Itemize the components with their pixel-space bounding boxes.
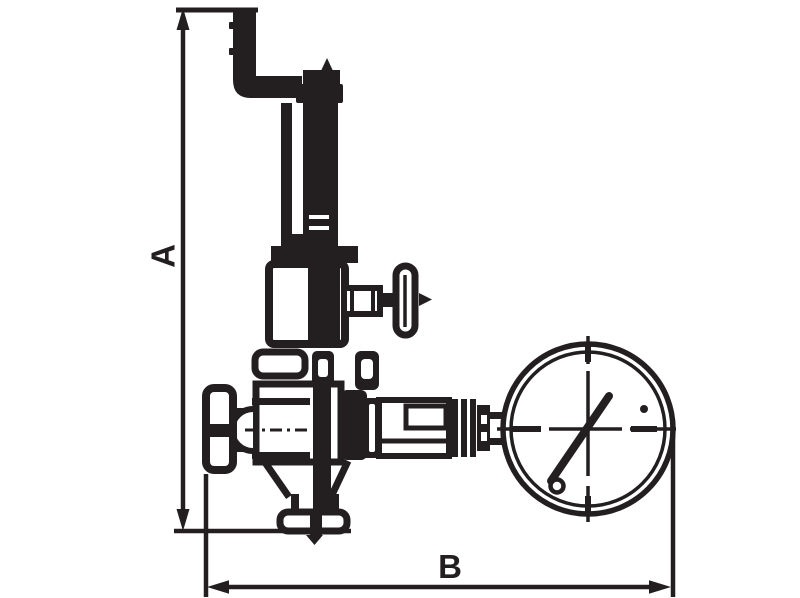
pressure-gauge: [497, 336, 676, 522]
funnel-left: [264, 461, 289, 497]
bonnet-cap-step: [282, 234, 306, 248]
gauge-connection: [341, 390, 505, 460]
rod-nub: [229, 22, 235, 29]
thread-notch: [309, 226, 329, 230]
outlet-tip: [306, 535, 323, 545]
knurl-ridge: [470, 399, 476, 457]
branch-cap-slot: [361, 359, 373, 379]
adjusting-screw-stem: [303, 100, 338, 246]
inlet-cap: [202, 388, 237, 470]
top-lever-rod: [229, 10, 302, 98]
bent-rod: [233, 10, 302, 98]
step-ring-slot: [481, 432, 487, 441]
dial-dot: [640, 405, 648, 413]
cap-step: [303, 70, 340, 86]
body-top-flange: [255, 352, 305, 376]
funnel-right: [331, 461, 348, 497]
dimension-a-arrow-down-icon: [177, 509, 190, 531]
dimension-b-arrow-left-icon: [207, 580, 229, 594]
branch-stem: [381, 293, 394, 307]
bonnet-spindle: [308, 264, 340, 344]
flange-ring-slot: [369, 404, 375, 452]
valve-body: [232, 384, 348, 545]
thread-notch: [309, 215, 329, 219]
step-ring-slot: [481, 415, 487, 424]
knurl-ridge: [461, 399, 467, 457]
stem-tip: [419, 293, 432, 306]
spring-housing-column: [281, 100, 338, 248]
inlet-handle-band: [202, 424, 237, 437]
port-bore-bottom: [252, 452, 310, 459]
body-right-boss: [341, 390, 367, 460]
outlet-flange-divider: [310, 509, 322, 535]
needle-hub: [551, 480, 564, 493]
nut-flat: [406, 406, 446, 428]
column-left-wall: [281, 103, 292, 248]
dial-tick-south: [585, 496, 591, 512]
dimension-b-label: B: [438, 548, 462, 585]
side-valve-branch: [344, 266, 432, 335]
step-ring: [477, 405, 490, 451]
bonnet-cap-right: [313, 232, 338, 248]
dimension-a-label: A: [145, 244, 182, 268]
port-bore-top: [252, 398, 310, 405]
dial-tick-east: [631, 426, 657, 432]
coupling-slot: [318, 359, 328, 377]
dial-tick-north: [585, 346, 591, 362]
valve-technical-drawing: A B: [0, 0, 800, 598]
knurl-ridge: [452, 399, 458, 457]
dial-tick-west: [511, 426, 541, 432]
rod-nub: [229, 48, 235, 55]
central-spindle: [313, 385, 331, 512]
dimension-b-arrow-right-icon: [649, 580, 671, 594]
adjusting-cap: [296, 58, 343, 103]
